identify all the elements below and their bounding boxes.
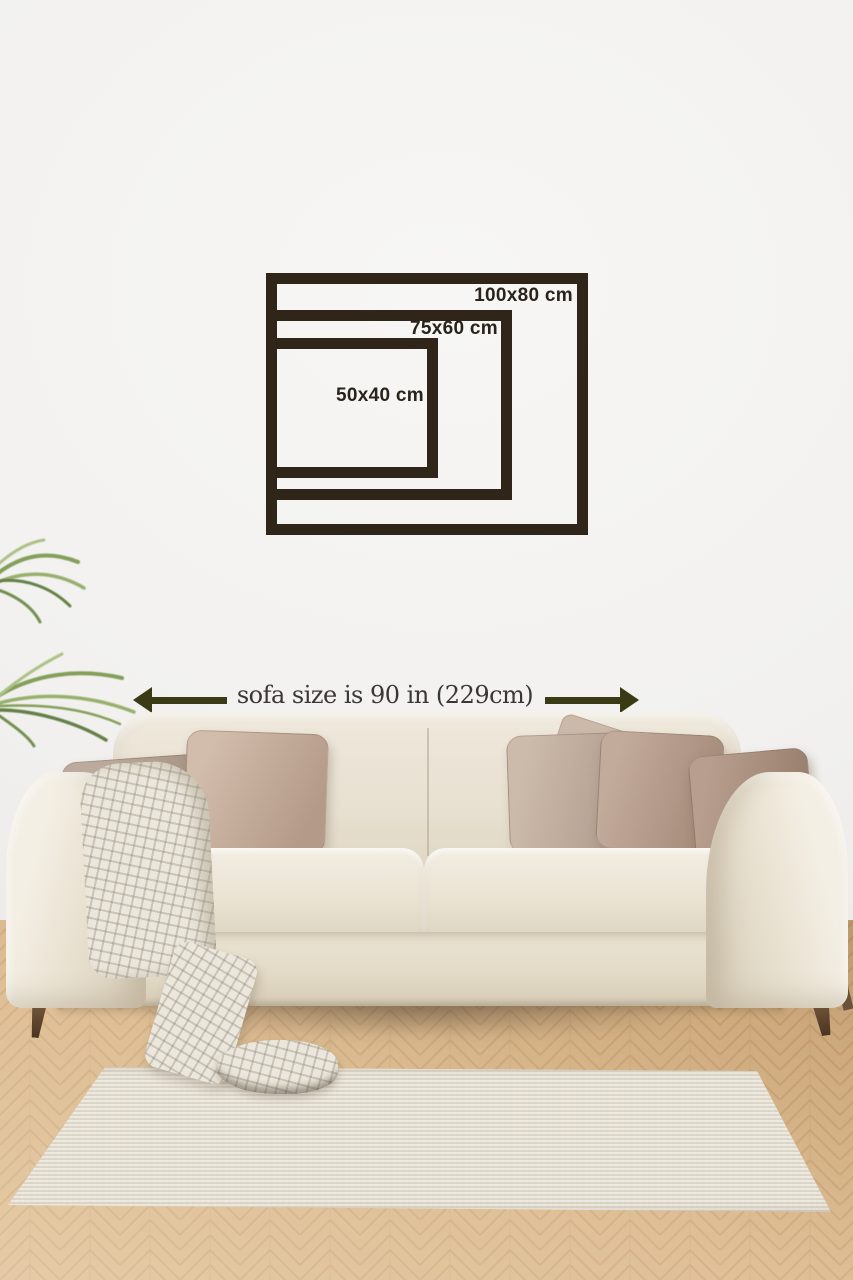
sofa-backrest-seam <box>427 728 429 856</box>
size-label-75x60: 75x60 cm <box>410 318 498 340</box>
size-frame-50x40: 50x40 cm <box>266 338 438 478</box>
throw-blanket-on-rug <box>216 1040 338 1094</box>
size-label-50x40: 50x40 cm <box>336 385 424 407</box>
sofa-arm-right <box>706 772 848 1008</box>
product-mockup-scene: 100x80 cm 75x60 cm 50x40 cm sofa size is… <box>0 0 853 1280</box>
rug <box>0 1060 853 1218</box>
size-label-100x80: 100x80 cm <box>474 285 573 307</box>
